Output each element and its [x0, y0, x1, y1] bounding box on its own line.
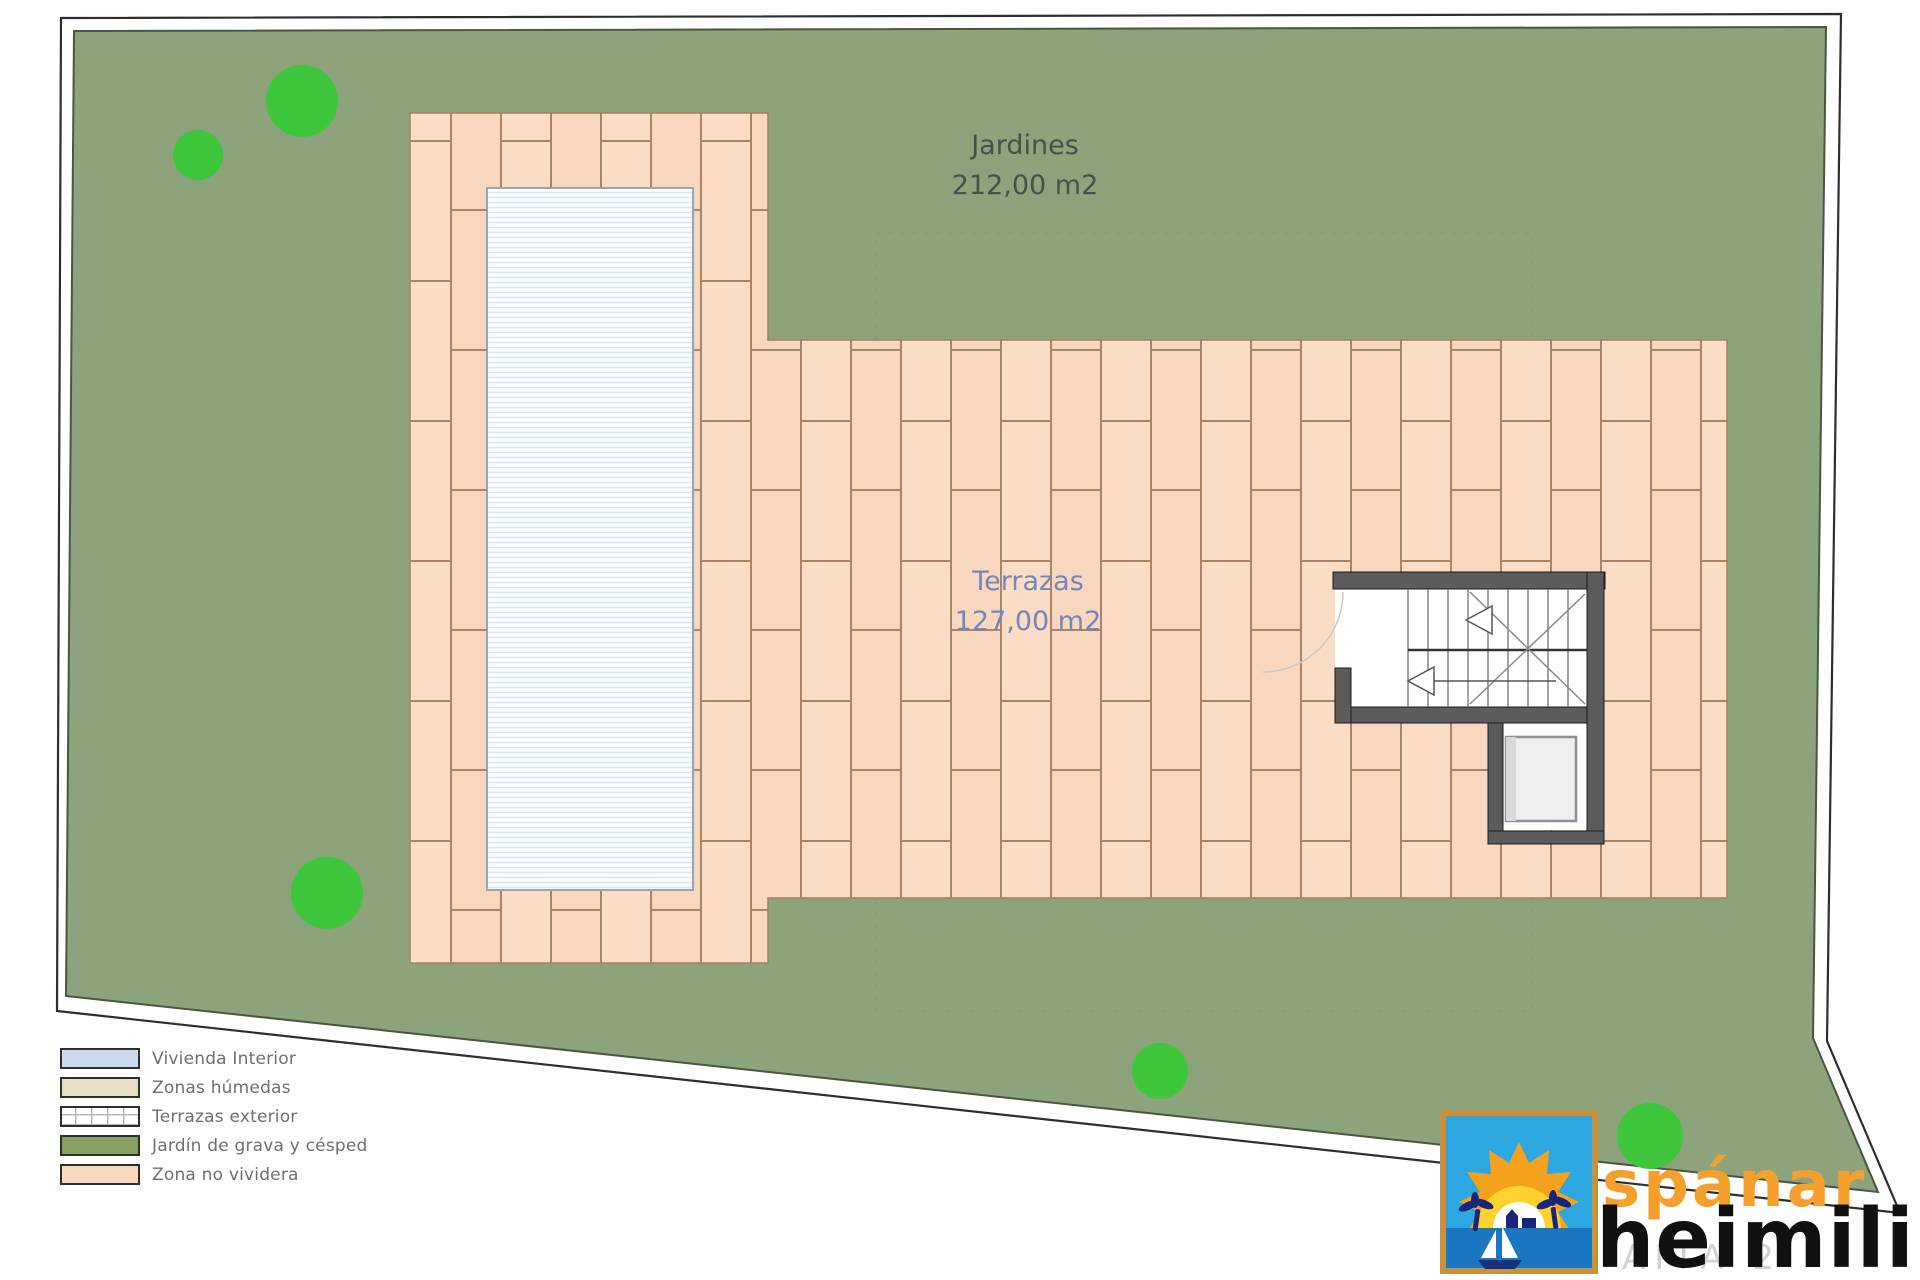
- legend-label: Zona no vividera: [152, 1165, 299, 1185]
- company-logo-badge: [1440, 1110, 1598, 1274]
- legend-swatch-novividera: [60, 1164, 140, 1185]
- tree-icon: [291, 857, 363, 929]
- legend: Vivienda Interior Zonas húmedas Terrazas…: [60, 1044, 368, 1189]
- legend-item-humedas: Zonas húmedas: [60, 1073, 368, 1102]
- legend-label: Terrazas exterior: [152, 1107, 298, 1127]
- legend-swatch-humedas: [60, 1077, 140, 1098]
- legend-item-novividera: Zona no vividera: [60, 1160, 368, 1189]
- legend-item-terrazas: Terrazas exterior: [60, 1102, 368, 1131]
- legend-label: Vivienda Interior: [152, 1049, 296, 1069]
- legend-label: Zonas húmedas: [152, 1078, 291, 1098]
- elevator-car: [1506, 737, 1576, 821]
- legend-swatch-vivienda: [60, 1048, 140, 1069]
- legend-swatch-jardin: [60, 1135, 140, 1156]
- brand-name-bottom: heimili: [1596, 1192, 1915, 1280]
- legend-item-vivienda: Vivienda Interior: [60, 1044, 368, 1073]
- legend-label: Jardín de grava y césped: [152, 1136, 368, 1156]
- tree-icon: [173, 130, 223, 180]
- legend-swatch-terrazas: [60, 1106, 140, 1127]
- tree-icon: [266, 65, 338, 137]
- tree-icon: [1132, 1043, 1188, 1099]
- swimming-pool: [487, 188, 693, 890]
- legend-item-jardin: Jardín de grava y césped: [60, 1131, 368, 1160]
- site-plan-page: Jardines 212,00 m2 Terrazas 127,00 m2 Vi…: [0, 0, 1920, 1280]
